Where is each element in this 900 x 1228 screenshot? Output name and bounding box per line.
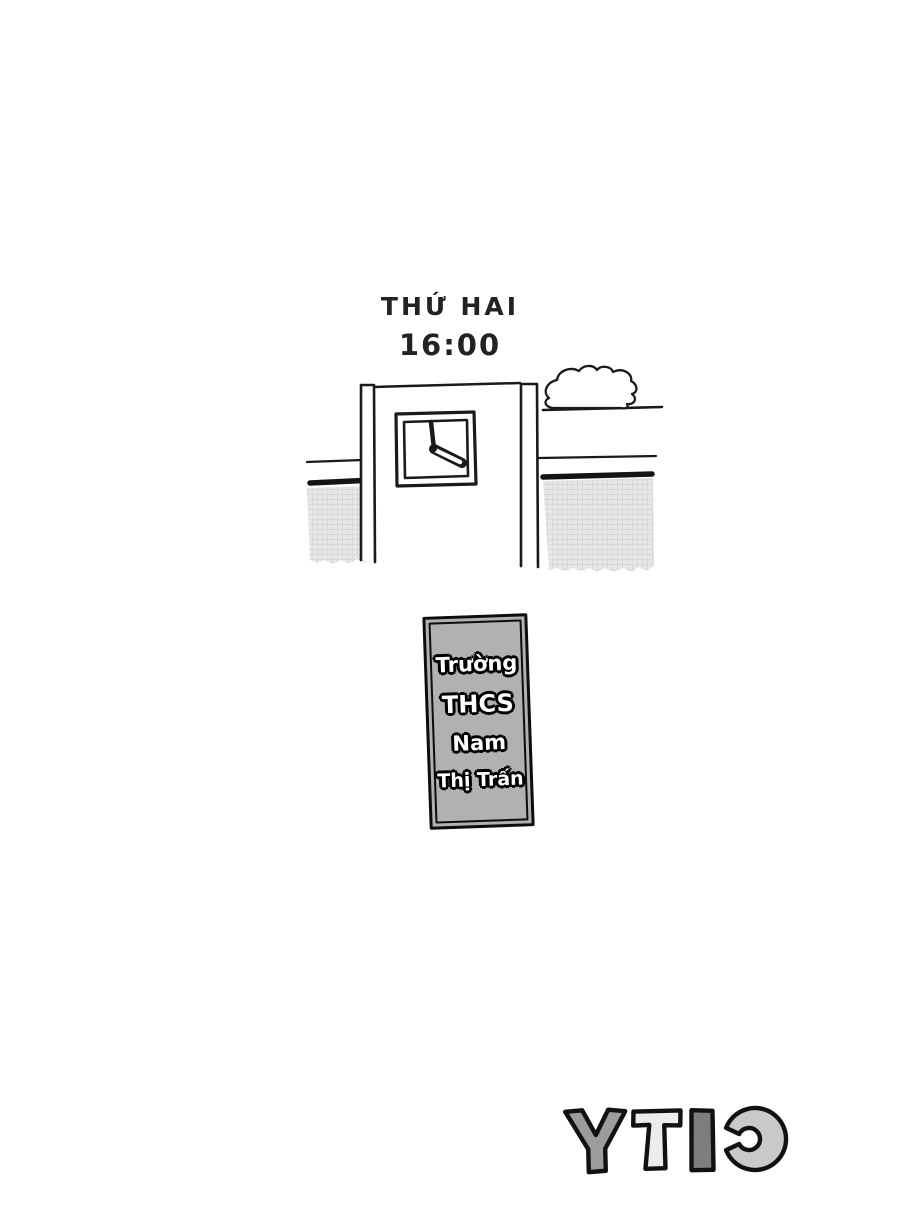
school-sign-line-2: THCS [442,691,515,717]
clock [396,412,476,486]
school-sign-board: Trường THCS Nam Thị Trấn [422,613,534,830]
wall-right-top-line [539,456,656,458]
school-sign-line-1: Trường [435,653,517,677]
cloud-icon [543,366,662,410]
gate-post-left [361,385,375,562]
school-sign-line-4: Thị Trấn [437,769,524,791]
wall-right [539,456,656,572]
logo-letter-c-mirrored [726,1108,786,1170]
school-sign-line-3: Nam [452,732,506,755]
logo-letter-t [632,1110,680,1170]
logo-letter-y [565,1109,627,1173]
gate-post-right [521,384,538,567]
clock-center-dot [431,446,437,452]
city-logo-mirrored [560,1102,795,1180]
wall-right-surface [543,478,654,572]
time-label: 16:00 [0,328,900,362]
wall-left-top-line [307,460,362,462]
logo-letter-i [690,1110,713,1170]
gate-illustration [295,362,670,585]
cloud-body [546,366,637,408]
wall-right-shadow-bar [543,474,652,477]
school-sign-inner-frame: Trường THCS Nam Thị Trấn [429,619,529,823]
day-label: THỨ HAI [0,292,900,321]
